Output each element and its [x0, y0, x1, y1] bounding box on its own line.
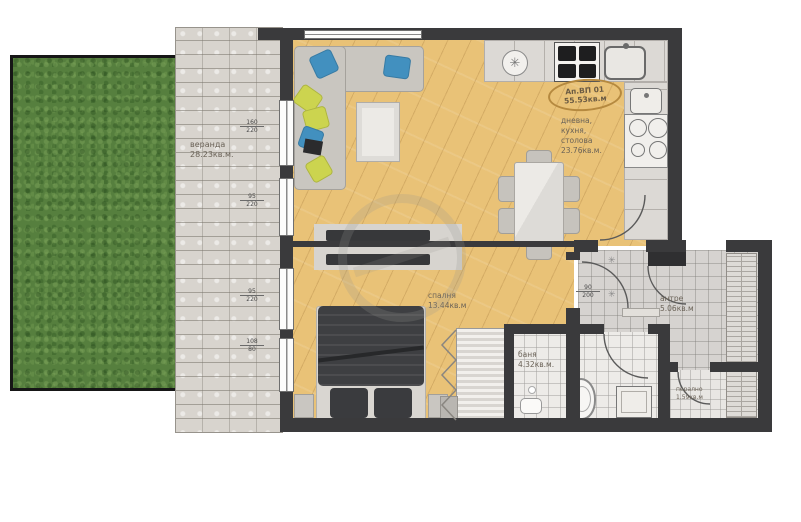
wardrobe-dresser — [440, 396, 458, 420]
dim-height: 220 — [246, 201, 257, 208]
cooktop-ring — [629, 119, 647, 137]
apartment-area: 55.53кв.м — [564, 94, 607, 106]
burner — [579, 46, 597, 61]
dim-height: 200 — [582, 292, 593, 299]
window-top — [304, 30, 422, 39]
burner — [558, 46, 576, 61]
dining-table — [514, 162, 564, 246]
kitchen-sink-icon — [604, 46, 646, 80]
wall-bedroom-hall-a — [566, 252, 580, 260]
dim-width: 160 — [240, 119, 264, 127]
wardrobe-clothes — [456, 328, 506, 420]
dim-width: 95 — [240, 193, 264, 201]
room-name: кухня, — [561, 126, 602, 136]
veranda-paving — [176, 28, 282, 432]
dim-width: 95 — [240, 288, 264, 296]
wall-right-lower — [758, 240, 772, 432]
coffee-table-top — [362, 108, 394, 156]
room-area: 28.23кв.м. — [190, 150, 234, 160]
window-bedroom-1 — [279, 268, 294, 330]
room-name: баня — [518, 350, 537, 359]
dim-height: 220 — [246, 296, 257, 303]
window-bedroom-2 — [279, 338, 294, 392]
hallway-bench — [622, 308, 660, 317]
washer-lid — [621, 391, 647, 413]
faucet-icon — [623, 43, 629, 49]
burner — [558, 64, 576, 79]
dim-width: 108 — [240, 338, 264, 346]
side-tray — [303, 139, 323, 156]
cooktop-ring — [649, 141, 667, 159]
pillow-blue — [383, 54, 412, 79]
wall-laundry-top-b — [710, 362, 758, 372]
coffee-table — [356, 102, 400, 162]
wall-bath-left — [504, 324, 514, 424]
room-name: столова — [561, 136, 602, 146]
wall-right-upper — [668, 28, 682, 252]
laundry-label: перално 1.59кв.м — [676, 386, 703, 402]
faucet-icon — [644, 93, 649, 98]
bed-pillow — [374, 388, 412, 418]
bathroom-sink-icon — [520, 398, 542, 414]
window-dimension: 95 220 — [240, 288, 264, 303]
wall-bath-top-a — [508, 324, 604, 334]
room-area: 1.59кв.м — [676, 394, 703, 402]
coat-hook-icon: ✳ — [608, 290, 616, 300]
built-in-wardrobe-hatch — [726, 253, 757, 418]
wall-bottom — [280, 418, 772, 432]
nightstand — [294, 394, 314, 418]
window-dimension: 108 80 — [240, 338, 264, 353]
washing-machine-icon — [616, 386, 652, 418]
bed-pillow — [330, 388, 368, 418]
stove-icon — [554, 42, 600, 82]
dim-width: 90 — [576, 284, 600, 292]
wall-bath-laundry — [658, 324, 670, 424]
window-dimension: 160 220 — [240, 119, 264, 134]
vent-fan-icon: ✳ — [502, 50, 528, 76]
room-area: 4.32кв.м. — [518, 360, 554, 370]
window-dimension: 95 220 — [240, 193, 264, 208]
hallway-label: антре 5.06кв.м — [660, 294, 694, 314]
wall-bath-top-b — [648, 324, 658, 334]
room-name: дневна, — [561, 116, 602, 126]
wall-laundry-top-a — [670, 362, 678, 372]
garden-grass — [10, 55, 178, 391]
living-label: дневна, кухня, столова 23.76кв.м. — [561, 116, 602, 156]
wall-hall-b — [646, 240, 686, 252]
room-name: антре — [660, 294, 683, 303]
room-area: 23.76кв.м. — [561, 146, 602, 156]
room-name: веранда — [190, 140, 225, 149]
entrance-door-leaf — [648, 252, 686, 266]
room-name: перално — [676, 386, 703, 393]
window-living-1 — [279, 100, 294, 166]
bathroom-accessory — [528, 386, 536, 394]
dim-height: 80 — [248, 346, 256, 353]
room-area: 5.06кв.м — [660, 304, 694, 314]
window-living-2 — [279, 178, 294, 236]
small-sink-icon — [630, 88, 662, 114]
bathroom-label: баня 4.32кв.м. — [518, 350, 554, 370]
veranda-label: веранда 28.23кв.м. — [190, 140, 234, 160]
floor-plan: ✳ — [0, 0, 801, 522]
cooktop-ring — [631, 143, 645, 157]
burner — [579, 64, 597, 79]
wall-hall-a — [574, 240, 598, 252]
coat-hook-icon: ✳ — [608, 256, 616, 266]
cooktop-icon — [624, 114, 668, 168]
cooktop-ring — [648, 118, 668, 138]
door-dimension: 90 200 — [576, 284, 600, 299]
dim-height: 220 — [246, 127, 257, 134]
